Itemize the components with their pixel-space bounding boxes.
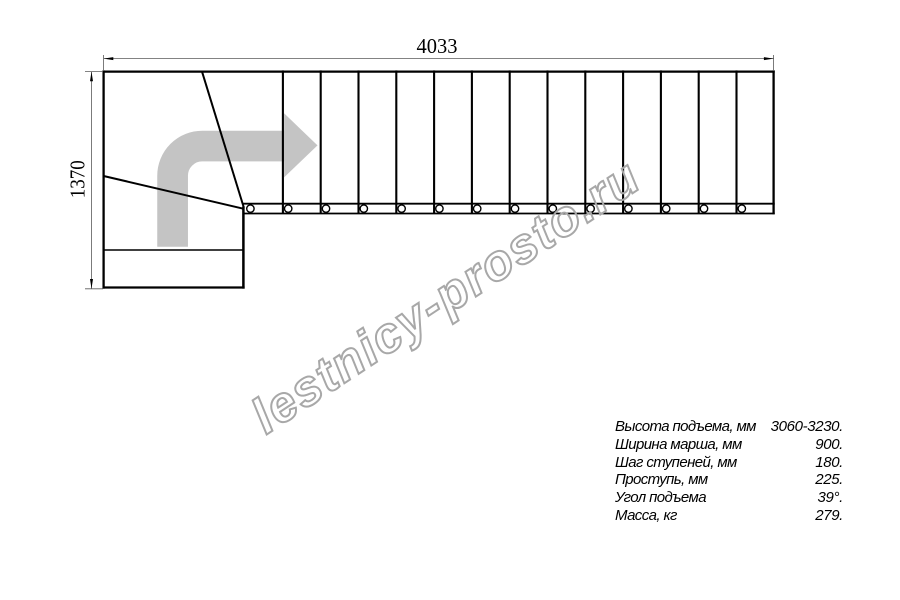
svg-text:lestnicy-prosto.ru: lestnicy-prosto.ru: [241, 148, 650, 444]
svg-text:4033: 4033: [417, 34, 458, 58]
svg-text:1370: 1370: [66, 160, 90, 198]
